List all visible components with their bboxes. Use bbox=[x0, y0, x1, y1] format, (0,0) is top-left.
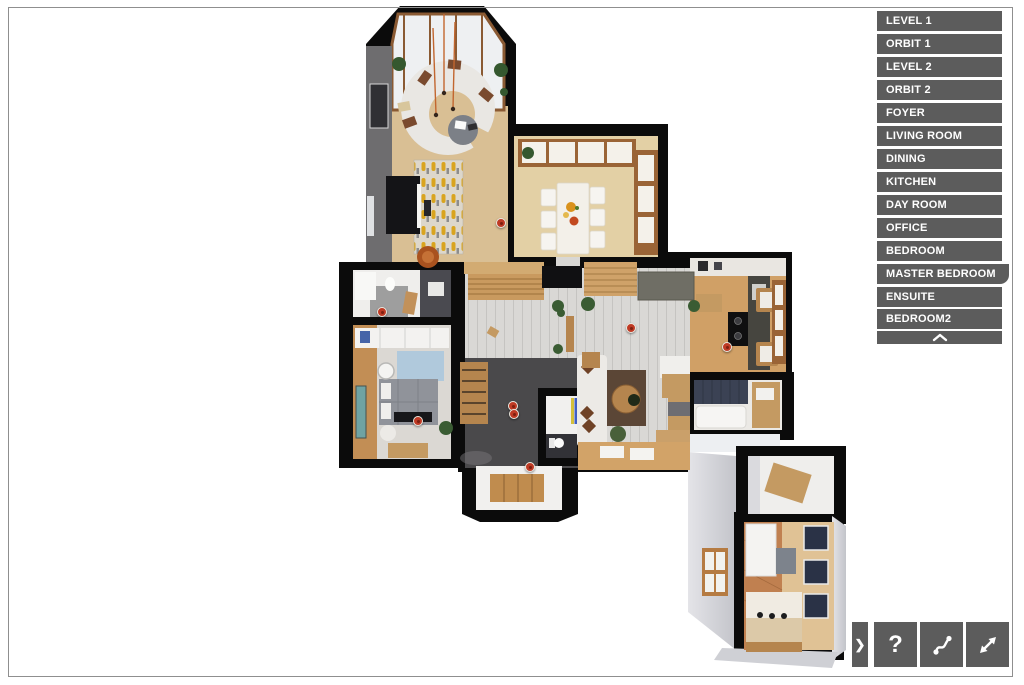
blue-rug bbox=[397, 351, 444, 381]
bathroom bbox=[353, 270, 451, 317]
sidebar-item-level-1[interactable]: LEVEL 1 bbox=[877, 11, 1002, 31]
sidebar-item-kitchen[interactable]: KITCHEN bbox=[877, 172, 1002, 192]
bed bbox=[746, 592, 802, 652]
mirror bbox=[356, 386, 366, 438]
cutting-board bbox=[696, 294, 722, 312]
view-hotspot[interactable] bbox=[525, 462, 535, 472]
patterned-rug bbox=[414, 160, 463, 254]
corridor-shelf bbox=[748, 456, 760, 514]
view-hotspot[interactable] bbox=[509, 409, 519, 419]
low-table-trays bbox=[578, 442, 690, 470]
sidebar-item-office[interactable]: OFFICE bbox=[877, 218, 1002, 238]
day-sofa bbox=[577, 355, 607, 447]
menu-scroll-up-button[interactable] bbox=[877, 331, 1002, 344]
sidebar-item-foyer[interactable]: FOYER bbox=[877, 103, 1002, 123]
floor-highlight bbox=[460, 451, 492, 465]
ensuite bbox=[694, 380, 782, 430]
plant bbox=[439, 421, 453, 435]
view-hotspot[interactable] bbox=[496, 218, 506, 228]
art-frames bbox=[804, 526, 828, 618]
sidebar-item-bedroom[interactable]: BEDROOM bbox=[877, 241, 1002, 261]
floorplan-render bbox=[0, 0, 1024, 685]
side-window bbox=[367, 196, 374, 236]
cooktop bbox=[728, 312, 748, 346]
chevron-right-icon: ❯ bbox=[855, 637, 866, 653]
towel-blue bbox=[575, 398, 578, 424]
plant bbox=[688, 300, 700, 312]
sidebar-item-bedroom2[interactable]: BEDROOM2 bbox=[877, 309, 1002, 329]
wing-window bbox=[702, 548, 728, 596]
dining-window-top bbox=[518, 139, 636, 167]
bedroom2 bbox=[744, 522, 834, 652]
plant bbox=[522, 147, 534, 159]
sidebar-item-living-room[interactable]: LIVING ROOM bbox=[877, 126, 1002, 146]
round-chair bbox=[378, 363, 394, 379]
upper-landing bbox=[464, 262, 544, 274]
dining-window-right bbox=[634, 150, 658, 255]
bathtub bbox=[696, 406, 746, 428]
desk-chair bbox=[776, 548, 796, 574]
range-hood-cabinet bbox=[638, 272, 694, 300]
fullscreen-button[interactable] bbox=[966, 622, 1009, 667]
sidebar-item-orbit-1[interactable]: ORBIT 1 bbox=[877, 34, 1002, 54]
sink bbox=[428, 282, 444, 296]
hall-bench bbox=[566, 316, 574, 352]
towel-yellow bbox=[571, 398, 574, 424]
menu-items: LEVEL 1ORBIT 1LEVEL 2ORBIT 2FOYERLIVING … bbox=[877, 11, 1009, 329]
living-room bbox=[366, 14, 508, 268]
sidebar-item-level-2[interactable]: LEVEL 2 bbox=[877, 57, 1002, 77]
collapse-toolbar-button[interactable]: ❯ bbox=[852, 622, 868, 667]
chevron-up-icon bbox=[931, 333, 949, 342]
staircase bbox=[468, 274, 544, 300]
sidebar-item-day-room[interactable]: DAY ROOM bbox=[877, 195, 1002, 215]
view-menu: LEVEL 1ORBIT 1LEVEL 2ORBIT 2FOYERLIVING … bbox=[877, 11, 1009, 344]
porch-mat bbox=[490, 474, 544, 502]
sidebar-item-ensuite[interactable]: ENSUITE bbox=[877, 287, 1002, 307]
wing-exterior-wall-right bbox=[832, 516, 846, 660]
porch bbox=[476, 466, 562, 510]
view-hotspot[interactable] bbox=[377, 307, 387, 317]
view-hotspot[interactable] bbox=[722, 342, 732, 352]
wall-art bbox=[370, 84, 388, 128]
counter-item bbox=[698, 261, 708, 271]
accent-chair bbox=[417, 246, 439, 268]
help-button[interactable]: ? bbox=[874, 622, 917, 667]
viewer-canvas[interactable] bbox=[0, 0, 1024, 685]
view-hotspot[interactable] bbox=[626, 323, 636, 333]
vase-plant bbox=[610, 426, 626, 442]
console-bench bbox=[460, 362, 488, 424]
counter-item bbox=[714, 262, 722, 270]
side-cabinet bbox=[582, 352, 600, 368]
sidebar-item-dining[interactable]: DINING bbox=[877, 149, 1002, 169]
dining-room bbox=[514, 136, 658, 268]
bathtub bbox=[355, 272, 376, 300]
sidebar-item-master-bedroom[interactable]: MASTER BEDROOM bbox=[877, 264, 1009, 284]
wing-corridor bbox=[748, 456, 834, 514]
pouf bbox=[380, 425, 396, 441]
view-hotspot[interactable] bbox=[413, 416, 423, 426]
sidebar-item-orbit-2[interactable]: ORBIT 2 bbox=[877, 80, 1002, 100]
toilet bbox=[554, 438, 564, 448]
expand-icon bbox=[976, 633, 1000, 657]
walkthrough-path-button[interactable] bbox=[920, 622, 963, 667]
basin bbox=[756, 388, 774, 400]
master-bedroom bbox=[353, 325, 453, 459]
bed bbox=[379, 379, 438, 425]
toilet bbox=[385, 277, 395, 291]
books bbox=[360, 331, 370, 343]
wood-mat bbox=[388, 443, 428, 458]
kitchen-window bbox=[772, 280, 786, 364]
staircase-upper bbox=[584, 262, 637, 296]
table-plant bbox=[628, 394, 640, 406]
wardrobe bbox=[746, 524, 776, 576]
question-mark-icon: ? bbox=[888, 633, 903, 657]
toolbar: ❯ ? bbox=[852, 622, 1009, 667]
coffee-table bbox=[448, 115, 478, 145]
sideboard bbox=[542, 266, 582, 288]
path-icon bbox=[929, 632, 955, 658]
